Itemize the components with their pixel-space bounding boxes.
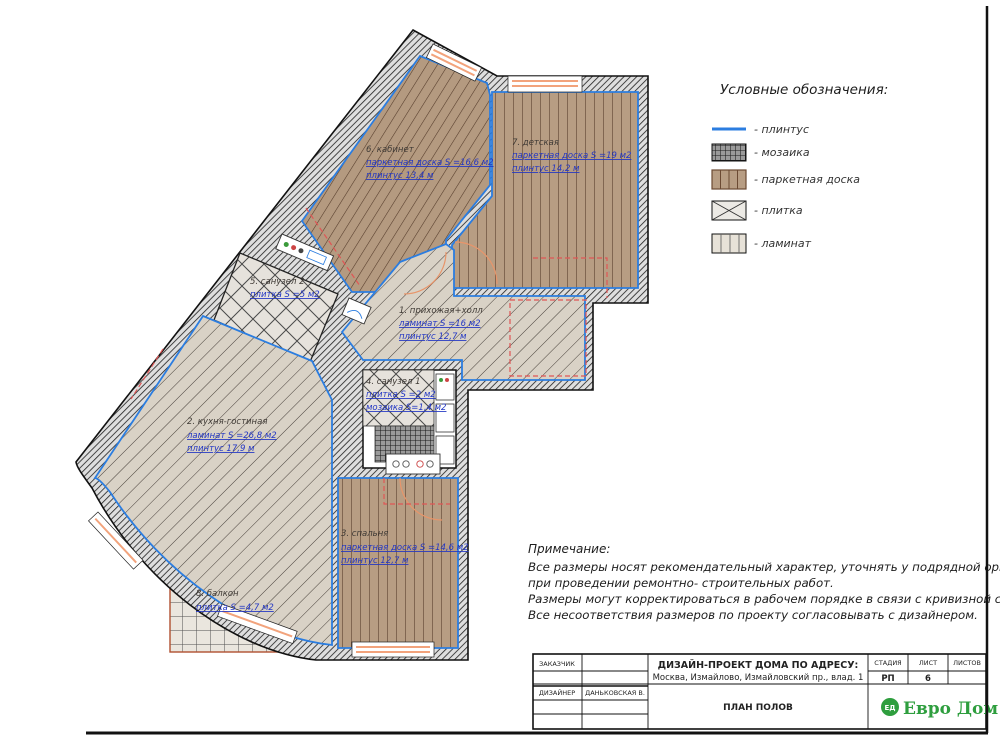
room-label: паркетная доска S =14,6 м2 (341, 543, 469, 553)
room-label: плитка S =4,7 м2 (196, 603, 274, 613)
sheet-title: ПЛАН ПОЛОВ (723, 703, 793, 713)
room-label: ламинат S =16 м2 (398, 319, 481, 329)
room-label: 5. санузел 2 (250, 277, 305, 287)
logo-badge-text: ЕД (884, 704, 895, 712)
room-label: плитка S =5 м2 (250, 290, 320, 300)
window (352, 642, 434, 657)
room-label: плинтус 12,7 м (341, 556, 409, 566)
logo-text: Евро Дом (903, 699, 998, 719)
room-label: плинтус 12,7 м (399, 332, 467, 342)
project-address: Москва, Измайлово, Измайловский пр., вла… (653, 673, 864, 683)
room-label: плинтус 14,2 м (512, 164, 580, 174)
room-label: плинтус 13,4 м (366, 171, 434, 181)
title-block: ЗАКАЗЧИК ДИЗАЙНЕР ДАНЬКОВСКАЯ В. ДИЗАЙН-… (533, 654, 998, 729)
stage-label: СТАДИЯ (874, 659, 901, 667)
fixture-kitchen-row (386, 454, 440, 474)
mosaic-swatch (712, 144, 746, 161)
room-label: плитка S =2 м2 (366, 390, 436, 400)
sheet-label: ЛИСТ (919, 659, 937, 667)
legend-item-label: - плитка (754, 204, 803, 217)
room-label: паркетная доска S =19 м2 (512, 151, 631, 161)
room-label: 6. кабинет (366, 145, 415, 155)
room-label: мозаика S=1,4 м2 (366, 403, 446, 413)
sheets-label: ЛИСТОВ (953, 659, 981, 667)
tile-swatch (712, 201, 746, 220)
room-label: 4. санузел 1 (366, 377, 421, 387)
notes-title: Примечание: (528, 542, 610, 556)
window (508, 76, 582, 92)
legend-item-label: - ламинат (754, 237, 812, 250)
notes-line: Размеры могут корректироваться в рабочем… (528, 592, 1000, 606)
room-label: 7. детская (512, 138, 559, 148)
customer-label: ЗАКАЗЧИК (539, 660, 575, 668)
project-title: ДИЗАЙН-ПРОЕКТ ДОМА ПО АДРЕСУ: (658, 659, 859, 671)
designer-label: ДИЗАЙНЕР (539, 688, 575, 697)
room-label: 3. спальня (341, 529, 388, 539)
notes-line: Все несоответствия размеров по проекту с… (528, 608, 978, 622)
notes-line: при проведении ремонтно- строительных ра… (528, 576, 834, 590)
notes: Примечание: Все размеры носят рекомендат… (528, 542, 1000, 622)
designer-value: ДАНЬКОВСКАЯ В. (585, 689, 645, 697)
sheet-value: 6 (925, 674, 931, 684)
laminate-swatch (712, 234, 746, 253)
parquet-swatch (712, 170, 746, 189)
legend-item-label: - плинтус (754, 123, 809, 136)
stage-value: РП (881, 674, 894, 684)
legend-item-label: - мозаика (754, 146, 810, 159)
room-label: плинтус 17,9 м (187, 444, 255, 454)
legend-title: Условные обозначения: (720, 82, 888, 98)
room-label: паркетная доска S =16,6 м2 (366, 158, 494, 168)
room-label: ламинат S =26,8 м2 (186, 431, 277, 441)
legend: Условные обозначения: - плинтус - мозаик… (712, 82, 888, 253)
room-label: 1. прихожая+холл (399, 306, 483, 316)
fixture (436, 374, 454, 400)
floor-plan-drawing: 6. кабинет паркетная доска S =16,6 м2 пл… (0, 0, 1000, 741)
drawing-sheet: 6. кабинет паркетная доска S =16,6 м2 пл… (0, 0, 1000, 741)
room-label: 2. кухня-гостиная (187, 417, 267, 427)
legend-item-label: - паркетная доска (754, 173, 860, 186)
notes-line: Все размеры носят рекомендательный харак… (528, 560, 1000, 574)
room-label: 8. балкон (196, 589, 239, 599)
